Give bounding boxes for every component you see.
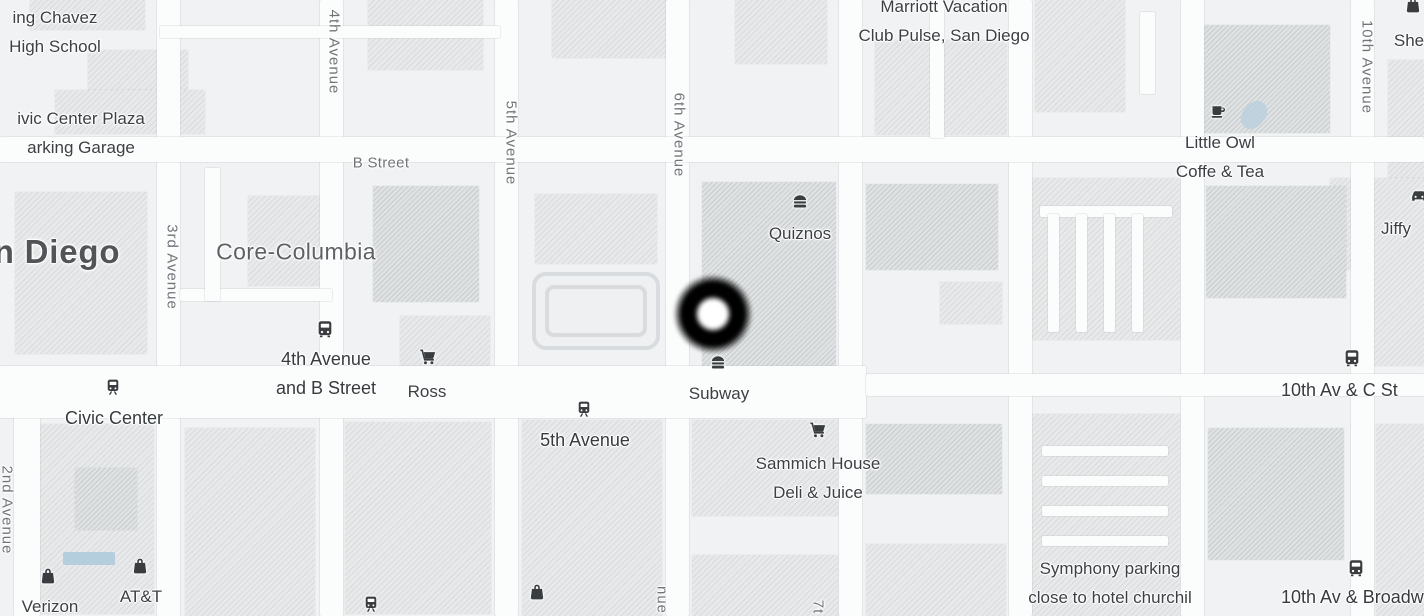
tram-icon[interactable] [575,400,594,419]
subway-label[interactable]: Subway [689,379,749,408]
bag-icon[interactable] [131,557,150,576]
street-label: 5th Avenue [503,101,520,186]
district-label: Core-Columbia [216,239,376,266]
bus-icon[interactable] [1347,559,1366,578]
bag-icon[interactable] [39,567,58,586]
poi-label-line: Club Pulse, San Diego [858,21,1029,50]
car-icon[interactable] [1410,187,1424,206]
bus-icon[interactable] [316,320,335,339]
poi-label-line: Quiznos [769,219,831,248]
poi-label-line: Marriott Vacation [858,0,1029,21]
burger-icon[interactable] [791,192,810,211]
att-label[interactable]: AT&T [120,582,162,611]
tram-icon[interactable] [362,595,381,614]
bag-icon[interactable] [528,583,547,602]
poi-label-line: High School [9,32,101,61]
she-label[interactable]: She [1394,26,1424,55]
street-label: nue [654,586,671,614]
street-label: 10th Avenue [1359,20,1376,114]
poi-label-line: Jiffy [1381,214,1411,243]
tram-icon[interactable] [104,378,123,397]
poi-label-line: Ross [408,377,447,406]
poi-label-line: Little Owl [1176,128,1264,157]
quiznos-label[interactable]: Quiznos [769,219,831,248]
coffee-icon[interactable] [1209,103,1228,122]
fourth-and-b-stop-label[interactable]: 4th Avenueand B Street [276,345,376,403]
sammich-house-label[interactable]: Sammich HouseDeli & Juice [756,449,881,507]
transit-label-line: 10th Av & C St [1281,376,1398,405]
poi-label-line: Coffe & Tea [1176,157,1264,186]
street-label: 2nd Avenue [0,466,16,555]
poi-label-line: She [1394,26,1424,55]
street-label: 4th Avenue [326,10,343,95]
poi-label-line: Sammich House [756,449,881,478]
fifth-avenue-station-label[interactable]: 5th Avenue [540,426,630,455]
bus-icon[interactable] [1343,349,1362,368]
poi-label-line: arking Garage [17,133,145,162]
poi-label-line: Subway [689,379,749,408]
poi-label-line: close to hotel churchil [1028,583,1191,612]
king-chavez-label[interactable]: ing ChavezHigh School [9,3,101,61]
street-label: 6th Avenue [671,93,688,178]
poi-label-line: Deli & Juice [756,478,881,507]
poi-label-line: Verizon [22,592,79,616]
city-label: n Diego [0,233,120,271]
transit-label-line: 10th Av & Broadw [1281,583,1424,612]
bag-icon[interactable] [1404,0,1423,15]
transit-label-line: 5th Avenue [540,426,630,455]
marriott-label[interactable]: Marriott VacationClub Pulse, San Diego [858,0,1029,50]
labels-layer: B Street2nd Avenue3rd Avenue4th Avenue5t… [0,0,1424,616]
street-label: 3rd Avenue [164,224,181,310]
civic-center-station-label[interactable]: Civic Center [65,404,163,433]
poi-label-line: AT&T [120,582,162,611]
symphony-parking-label[interactable]: Symphony parkingclose to hotel churchil [1028,554,1191,612]
poi-label-line: Symphony parking [1028,554,1191,583]
poi-label-line: ing Chavez [9,3,101,32]
little-owl-label[interactable]: Little OwlCoffe & Tea [1176,128,1264,186]
transit-label-line: 4th Avenue [276,345,376,374]
tenth-and-c-stop-label[interactable]: 10th Av & C St [1281,376,1398,405]
map-canvas[interactable]: B Street2nd Avenue3rd Avenue4th Avenue5t… [0,0,1424,616]
cart-icon[interactable] [809,421,828,440]
poi-label-line: ivic Center Plaza [17,104,145,133]
street-label: B Street [353,155,410,172]
cart-icon[interactable] [419,348,438,367]
transit-label-line: Civic Center [65,404,163,433]
jiffy-label[interactable]: Jiffy [1381,214,1411,243]
verizon-label[interactable]: Verizon [22,592,79,616]
tenth-and-broadway-stop-label[interactable]: 10th Av & Broadw [1281,583,1424,612]
street-label: 7t [810,600,827,615]
ross-label[interactable]: Ross [408,377,447,406]
burger-icon[interactable] [709,353,728,372]
transit-label-line: and B Street [276,374,376,403]
civic-plaza-garage-label[interactable]: ivic Center Plazaarking Garage [17,104,145,162]
